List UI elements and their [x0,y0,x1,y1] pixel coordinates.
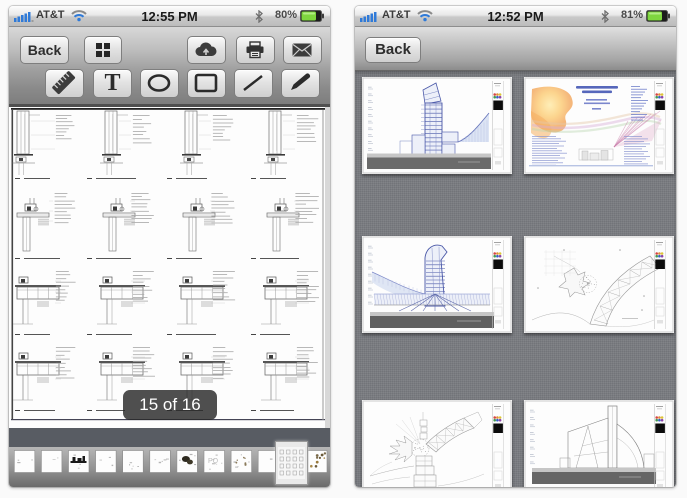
svg-text:PQ: PQ [208,458,219,465]
